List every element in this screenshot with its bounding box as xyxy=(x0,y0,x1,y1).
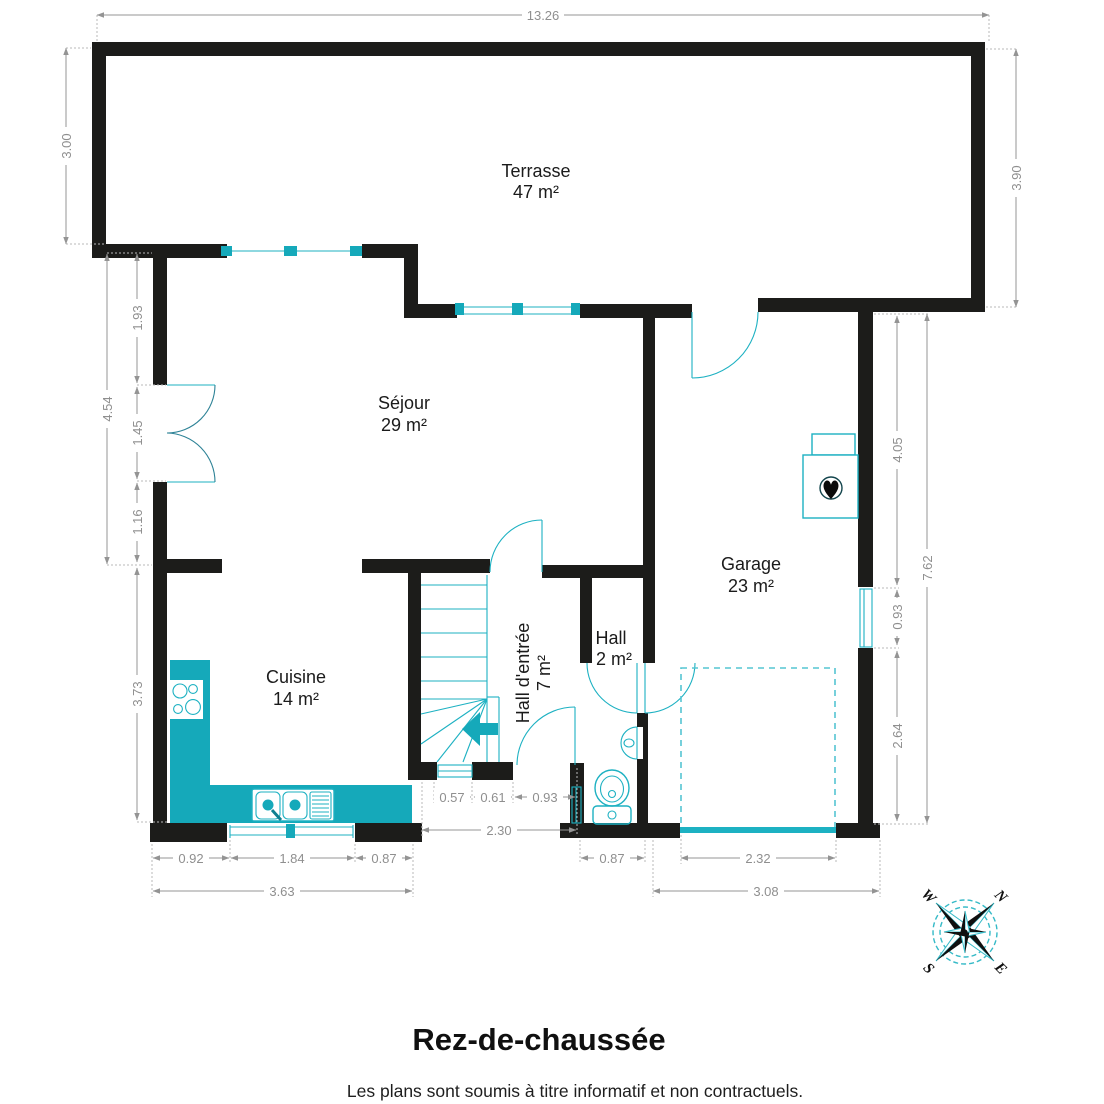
compass-south-label: S xyxy=(920,960,937,977)
garage-east-wall-upper xyxy=(858,312,873,587)
stairs-direction-arrow xyxy=(462,712,498,746)
hall-label: Hall xyxy=(595,628,626,648)
garage-east-wall-lower xyxy=(858,648,873,827)
garage-area: 23 m² xyxy=(728,576,774,596)
svg-text:1.84: 1.84 xyxy=(279,851,304,866)
dim-garage-seg1: 4.05 xyxy=(890,431,905,469)
corner-washbasin xyxy=(621,727,643,759)
svg-text:2.30: 2.30 xyxy=(486,823,511,838)
dim-garage-window: 0.93 xyxy=(890,598,905,636)
terrasse-label: Terrasse xyxy=(501,161,570,181)
terrace-east-wall xyxy=(971,42,985,312)
terrace-garage-door xyxy=(692,312,758,378)
svg-text:0.87: 0.87 xyxy=(371,851,396,866)
wc-door xyxy=(587,663,637,713)
svg-text:0.87: 0.87 xyxy=(599,851,624,866)
dim-top: 13.26 xyxy=(522,8,564,23)
garage-north-wall xyxy=(758,298,985,312)
cuisine-area: 14 m² xyxy=(273,689,319,709)
sejour-north-wall-a xyxy=(404,304,457,318)
terrace-west-wall xyxy=(92,42,106,258)
terrace-north-wall xyxy=(92,42,985,56)
dim-sejour-seg1: 1.93 xyxy=(130,299,145,337)
terrasse-area: 47 m² xyxy=(513,182,559,202)
west-wall-upper xyxy=(153,250,167,385)
svg-text:3.90: 3.90 xyxy=(1009,165,1024,190)
dim-hall-seg2: 0.61 xyxy=(475,790,511,805)
sejour-cuisine-wall-right xyxy=(362,559,490,573)
svg-text:7.62: 7.62 xyxy=(920,555,935,580)
dim-sejour-door: 1.45 xyxy=(130,414,145,452)
cooktop xyxy=(170,680,203,719)
dim-terrace-right: 3.90 xyxy=(1009,159,1024,197)
dim-kitchen-window: 1.84 xyxy=(274,851,310,866)
hall-entree-label: Hall d'entrée xyxy=(513,623,533,724)
svg-text:3.73: 3.73 xyxy=(130,681,145,706)
kitchen-south-wall-left xyxy=(150,823,227,842)
sejour-french-door xyxy=(167,385,215,482)
boiler xyxy=(803,434,858,518)
compass-east-label: E xyxy=(990,959,1009,978)
sejour-cuisine-wall-left xyxy=(153,559,222,573)
svg-text:1.45: 1.45 xyxy=(130,420,145,445)
svg-text:4.05: 4.05 xyxy=(890,437,905,462)
sejour-north-wall-b xyxy=(580,304,692,318)
garage-sectional-door xyxy=(680,668,836,833)
dim-cuisine-height: 3.73 xyxy=(130,675,145,713)
dim-kitchen-seg1: 0.92 xyxy=(173,851,209,866)
sejour-area: 29 m² xyxy=(381,415,427,435)
hall-entree-area: 7 m² xyxy=(534,655,554,691)
svg-text:4.54: 4.54 xyxy=(100,396,115,421)
garage-window xyxy=(860,589,872,647)
dim-sejour-seg2: 1.16 xyxy=(130,503,145,541)
compass-west-label: W xyxy=(918,886,940,908)
dim-hall-seg1: 0.57 xyxy=(434,790,470,805)
disclaimer-text: Les plans sont soumis à titre informatif… xyxy=(347,1081,803,1101)
windows xyxy=(221,246,872,838)
svg-text:0.93: 0.93 xyxy=(532,790,557,805)
dim-hall-total: 2.30 xyxy=(481,823,517,838)
kitchen-south-wall-right xyxy=(355,823,422,842)
svg-text:0.61: 0.61 xyxy=(480,790,505,805)
page-title: Rez-de-chaussée xyxy=(412,1022,665,1057)
dim-garage-total: 3.08 xyxy=(748,884,784,899)
dim-sejour-total: 4.54 xyxy=(100,390,115,428)
entry-south-wall-b xyxy=(472,762,513,780)
wc-west-wall xyxy=(580,573,592,663)
hall-area: 2 m² xyxy=(596,649,632,669)
cuisine-label: Cuisine xyxy=(266,667,326,687)
dim-wc-width: 0.87 xyxy=(594,851,630,866)
wc-south-wall xyxy=(560,823,680,838)
captions: Rez-de-chaussée Les plans sont soumis à … xyxy=(347,1022,803,1101)
hall-entree-label-group: Hall d'entrée 7 m² xyxy=(513,623,554,724)
dim-hall-door: 0.93 xyxy=(527,790,563,805)
svg-text:3.63: 3.63 xyxy=(269,884,294,899)
svg-text:1.93: 1.93 xyxy=(130,305,145,330)
compass-rose: N E S W xyxy=(882,850,1046,1014)
doors xyxy=(167,312,758,765)
toilet xyxy=(593,770,631,824)
dim-terrace-left: 3.00 xyxy=(59,127,74,165)
sejour-window xyxy=(455,303,580,315)
sejour-label: Séjour xyxy=(378,393,430,413)
svg-text:1.16: 1.16 xyxy=(130,509,145,534)
kitchen-window xyxy=(230,824,353,838)
dim-kitchen-seg2: 0.87 xyxy=(366,851,402,866)
svg-text:0.57: 0.57 xyxy=(439,790,464,805)
garage-label: Garage xyxy=(721,554,781,574)
west-wall-lower xyxy=(153,482,167,842)
staircase xyxy=(421,575,499,762)
sejour-garage-wall xyxy=(643,310,655,663)
stairs-west-wall xyxy=(408,573,421,780)
hall-garage-door xyxy=(645,663,695,713)
sejour-hall-wall xyxy=(542,565,655,578)
svg-text:2.32: 2.32 xyxy=(745,851,770,866)
dim-kitchen-total: 3.63 xyxy=(264,884,300,899)
floor-plan-canvas: 13.26 3.00 3.90 4.54 1.93 1.45 1.16 3.73… xyxy=(0,0,1104,1104)
svg-text:3.00: 3.00 xyxy=(59,133,74,158)
svg-text:13.26: 13.26 xyxy=(527,8,560,23)
svg-text:3.08: 3.08 xyxy=(753,884,778,899)
entry-south-wall-a xyxy=(408,762,437,780)
svg-text:2.64: 2.64 xyxy=(890,723,905,748)
svg-text:0.92: 0.92 xyxy=(178,851,203,866)
room-labels: Terrasse 47 m² Séjour 29 m² Garage 23 m²… xyxy=(266,161,781,723)
kitchen-sink xyxy=(252,789,334,821)
sejour-hall-door xyxy=(490,520,542,572)
svg-text:0.93: 0.93 xyxy=(890,604,905,629)
entry-sidelight-window xyxy=(438,765,472,777)
sliding-bay-door xyxy=(221,246,362,256)
dim-right-total: 7.62 xyxy=(920,549,935,587)
floor-plan-page: 13.26 3.00 3.90 4.54 1.93 1.45 1.16 3.73… xyxy=(0,0,1104,1104)
dim-garage-door: 2.32 xyxy=(740,851,776,866)
wc-fixtures xyxy=(593,727,643,824)
dim-garage-seg2: 2.64 xyxy=(890,717,905,755)
